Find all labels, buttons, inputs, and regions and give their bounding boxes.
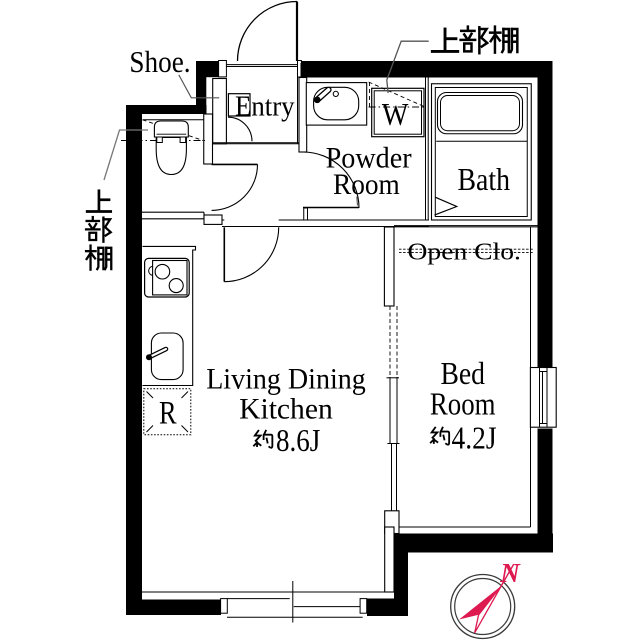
- svg-text:Room: Room: [430, 385, 496, 421]
- svg-text:4.2J: 4.2J: [452, 419, 497, 455]
- svg-text:Open Clo.: Open Clo.: [408, 240, 521, 266]
- svg-text:Living Dining: Living Dining: [206, 363, 366, 396]
- svg-text:R: R: [159, 396, 177, 432]
- svg-text:Kitchen: Kitchen: [239, 393, 333, 425]
- svg-text:Room: Room: [333, 169, 400, 201]
- svg-text:W: W: [382, 96, 409, 132]
- svg-text:Entry: Entry: [235, 92, 295, 123]
- svg-text:8.6J: 8.6J: [276, 423, 320, 458]
- svg-text:Shoe.: Shoe.: [129, 45, 190, 79]
- svg-text:Bath: Bath: [458, 161, 511, 197]
- svg-text:N: N: [499, 558, 521, 588]
